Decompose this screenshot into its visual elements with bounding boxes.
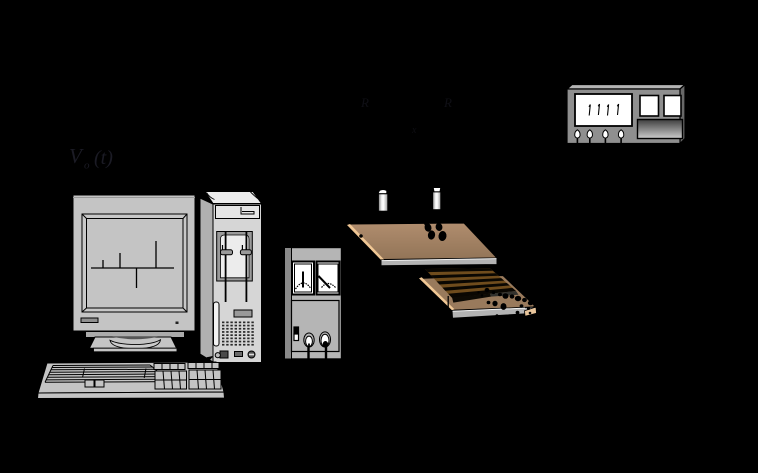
svg-text:R: R bbox=[443, 95, 452, 110]
svg-text:x: x bbox=[411, 125, 417, 136]
svg-text:R: R bbox=[360, 95, 369, 110]
svg-text:o: o bbox=[84, 160, 90, 172]
svg-text:(t): (t) bbox=[94, 147, 113, 169]
svg-text:V: V bbox=[69, 144, 84, 168]
